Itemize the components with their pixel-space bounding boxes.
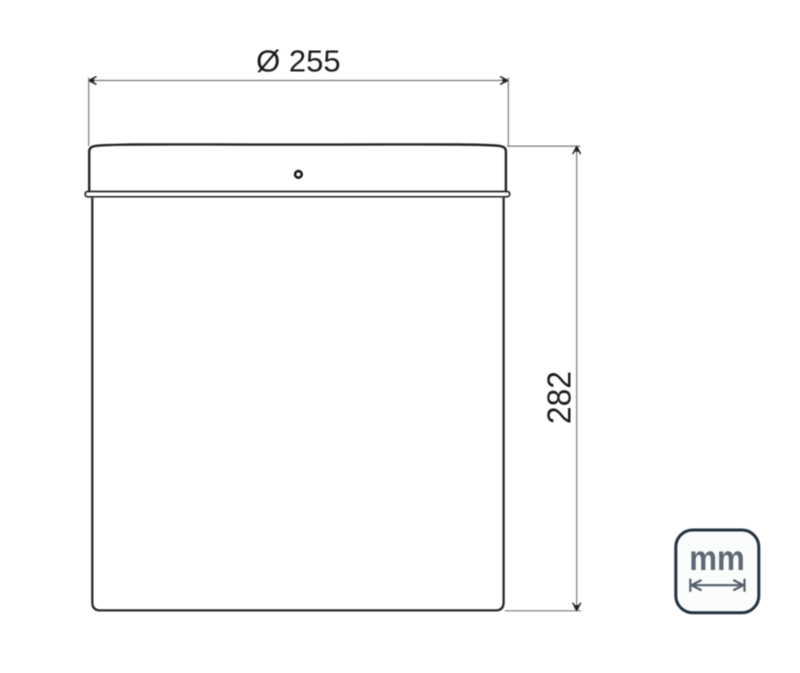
svg-text:Ø 255: Ø 255 [256,44,340,79]
svg-text:mm: mm [689,539,745,578]
svg-text:282: 282 [542,371,579,424]
